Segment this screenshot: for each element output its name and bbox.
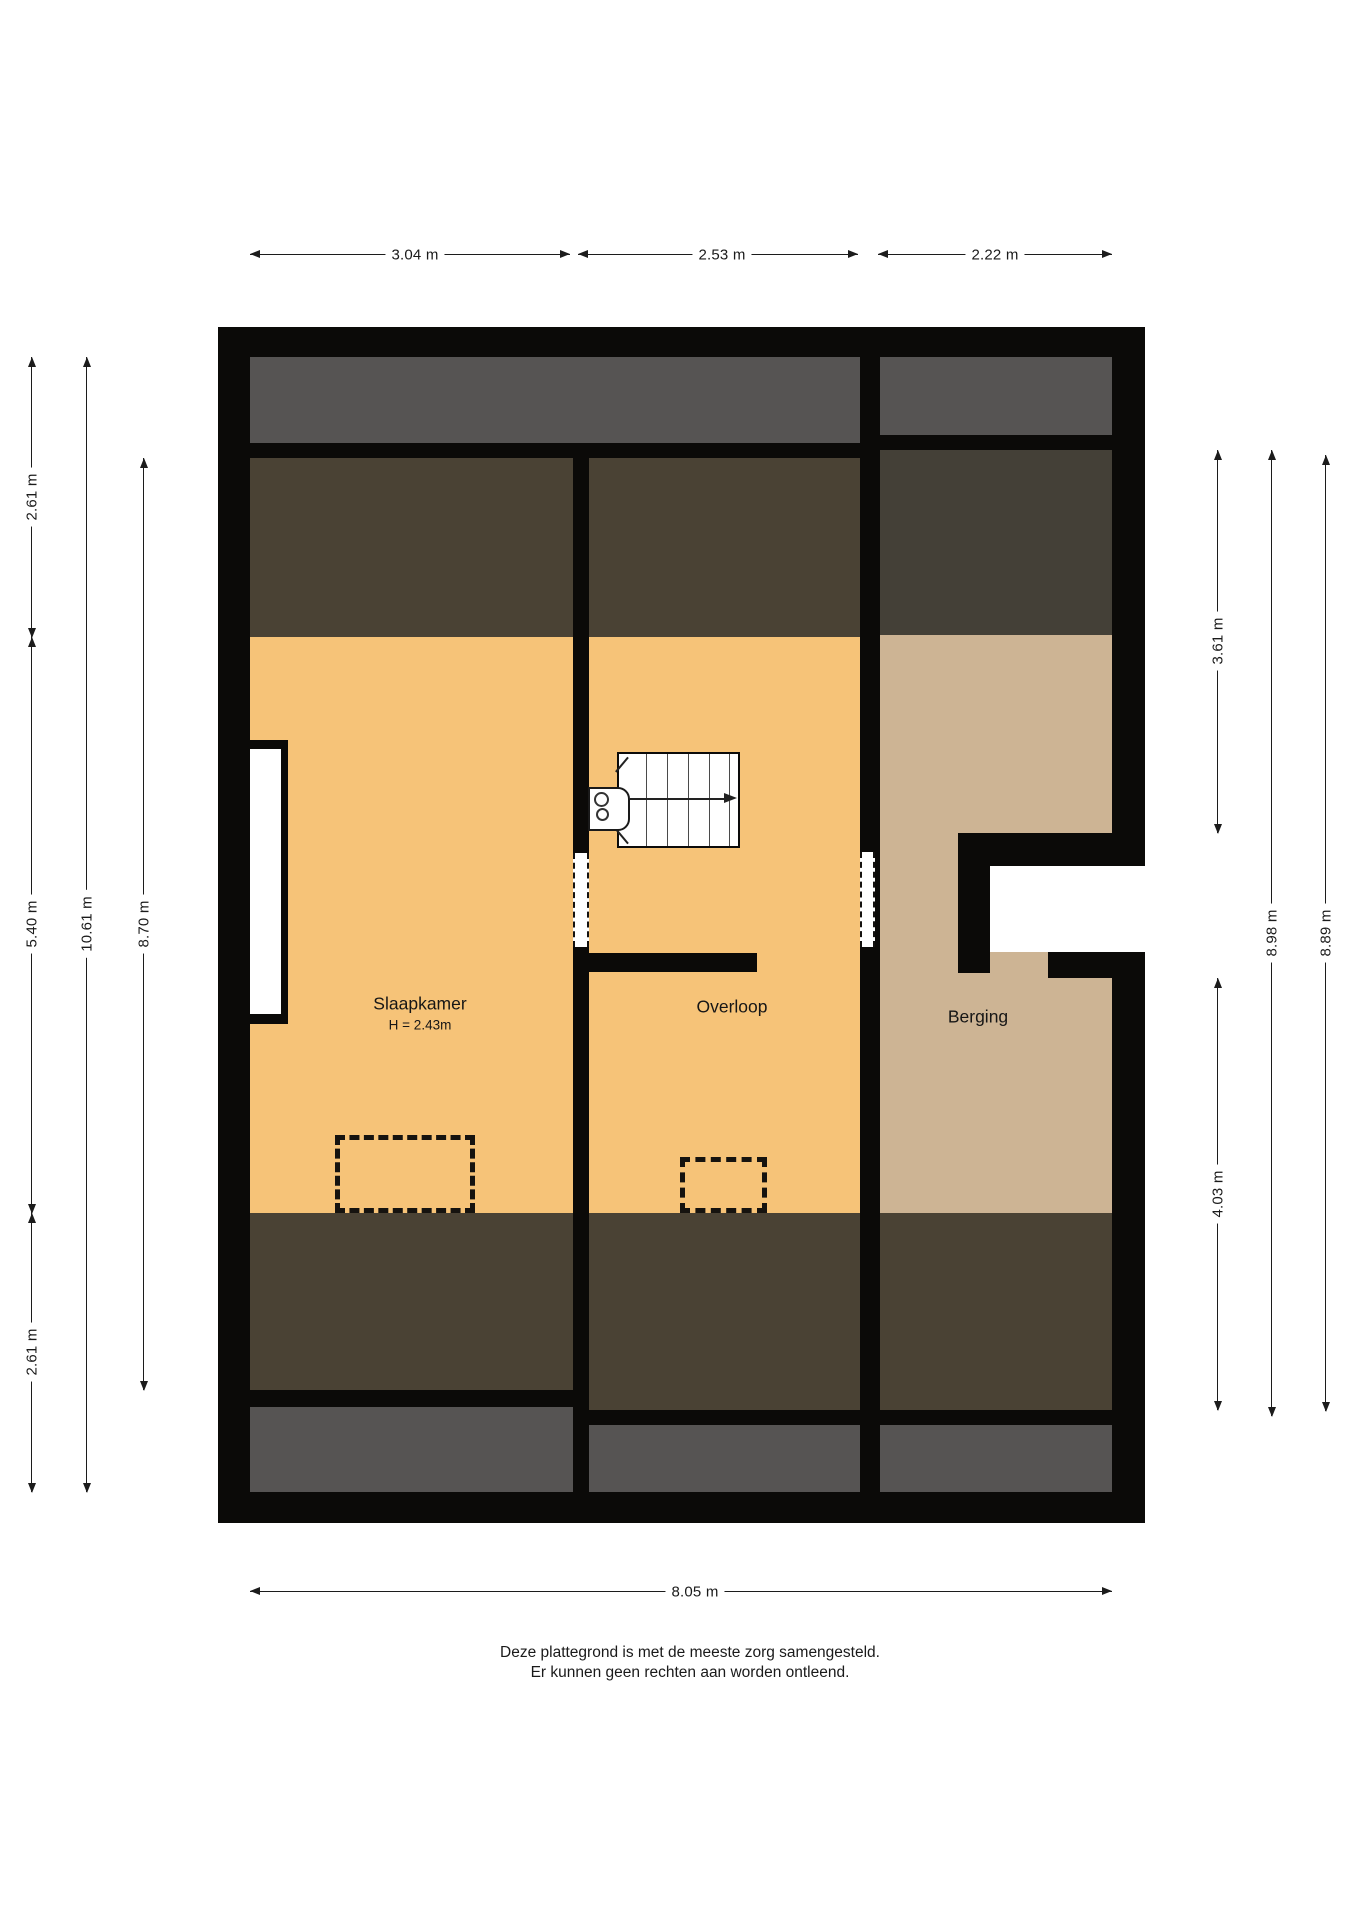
dim-arrowhead	[1322, 1402, 1330, 1412]
dim-arrowhead	[1214, 978, 1222, 988]
door-opening-slaapkamer	[573, 853, 589, 947]
room-label-overloop: Overloop	[696, 997, 767, 1018]
room-slaapkamer-floor	[250, 637, 573, 1213]
stair-tread	[709, 754, 710, 846]
ceiling-slope-top-mid	[589, 458, 860, 637]
vestibule-wall-bottom	[1048, 952, 1112, 978]
ceiling-slope-bottom-right	[880, 1213, 1112, 1410]
dim-label-bottom: 8.05 m	[665, 1584, 724, 1601]
dim-arrowhead	[250, 250, 260, 258]
dim-arrowhead	[140, 458, 148, 468]
dormer-outline-overloop	[680, 1157, 767, 1213]
dim-label-right-upper: 3.61 m	[1210, 611, 1227, 670]
room-label-berging: Berging	[948, 1007, 1008, 1028]
dim-arrowhead	[28, 1483, 36, 1493]
boiler-dial-icon	[594, 792, 609, 807]
boiler-icon	[588, 787, 630, 831]
dim-arrowhead	[28, 637, 36, 647]
stairwell-wall-stub	[589, 953, 757, 972]
boiler-dial-icon	[596, 808, 609, 821]
roof-band-bottom-mid	[589, 1425, 860, 1492]
dim-arrowhead	[560, 250, 570, 258]
floor-plan: Slaapkamer H = 2.43m Overloop Berging 3.…	[0, 0, 1358, 1920]
ceiling-slope-bottom-left	[250, 1213, 573, 1390]
dim-arrowhead	[1102, 1587, 1112, 1595]
dim-arrowhead	[28, 357, 36, 367]
dim-arrowhead	[28, 1213, 36, 1223]
roof-band-top-left	[250, 357, 860, 443]
dim-label-left-inner: 8.70 m	[136, 894, 153, 953]
disclaimer-line-1: Deze plattegrond is met de meeste zorg s…	[500, 1643, 880, 1663]
stair-tread	[646, 754, 647, 846]
dim-arrowhead	[83, 1483, 91, 1493]
stair-tread	[688, 754, 689, 846]
room-label-slaapkamer: Slaapkamer	[373, 994, 466, 1015]
dim-arrowhead	[1268, 450, 1276, 460]
stair-direction-arrow	[630, 798, 726, 800]
door-opening-berging	[860, 852, 875, 947]
roof-band-bottom-left	[250, 1407, 573, 1492]
ceiling-slope-bottom-mid	[589, 1213, 860, 1410]
dim-label-top-1: 3.04 m	[385, 247, 444, 264]
dim-arrowhead	[1214, 1401, 1222, 1411]
dim-label-left-outer-mid: 5.40 m	[24, 894, 41, 953]
dim-label-left-outer-bottom: 2.61 m	[24, 1322, 41, 1381]
disclaimer: Deze plattegrond is met de meeste zorg s…	[500, 1643, 880, 1682]
dim-arrowhead	[140, 1381, 148, 1391]
dim-arrowhead	[250, 1587, 260, 1595]
dim-arrowhead	[83, 357, 91, 367]
dormer-outline-slaapkamer	[335, 1135, 475, 1213]
dim-arrowhead	[1102, 250, 1112, 258]
staircase	[617, 752, 740, 848]
dim-arrowhead	[1214, 450, 1222, 460]
room-height-note: H = 2.43m	[389, 1018, 452, 1033]
ceiling-slope-top-left	[250, 458, 573, 637]
ceiling-slope-top-berging	[880, 450, 1112, 635]
dim-arrowhead	[848, 250, 858, 258]
dim-arrowhead	[1322, 455, 1330, 465]
stair-direction-arrowhead-icon	[724, 793, 737, 803]
dim-arrowhead	[878, 250, 888, 258]
vestibule-wall-top	[958, 833, 1112, 866]
dim-arrowhead	[578, 250, 588, 258]
roof-band-top-right	[880, 357, 1112, 435]
dim-label-left-outer-top: 2.61 m	[24, 467, 41, 526]
stair-tread	[667, 754, 668, 846]
room-overloop-floor	[589, 637, 860, 1213]
dim-label-right-total-1: 8.98 m	[1264, 903, 1281, 962]
dim-label-left-total: 10.61 m	[79, 890, 96, 958]
window-pane	[250, 749, 281, 1014]
dim-arrowhead	[1268, 1407, 1276, 1417]
dim-label-top-3: 2.22 m	[965, 247, 1024, 264]
dim-label-right-lower: 4.03 m	[1210, 1164, 1227, 1223]
dim-label-right-total-2: 8.89 m	[1318, 903, 1335, 962]
disclaimer-line-2: Er kunnen geen rechten aan worden ontlee…	[500, 1663, 880, 1683]
dim-label-top-2: 2.53 m	[692, 247, 751, 264]
roof-band-bottom-right	[880, 1425, 1112, 1492]
dim-arrowhead	[1214, 824, 1222, 834]
berging-exterior-opening	[990, 866, 1146, 952]
